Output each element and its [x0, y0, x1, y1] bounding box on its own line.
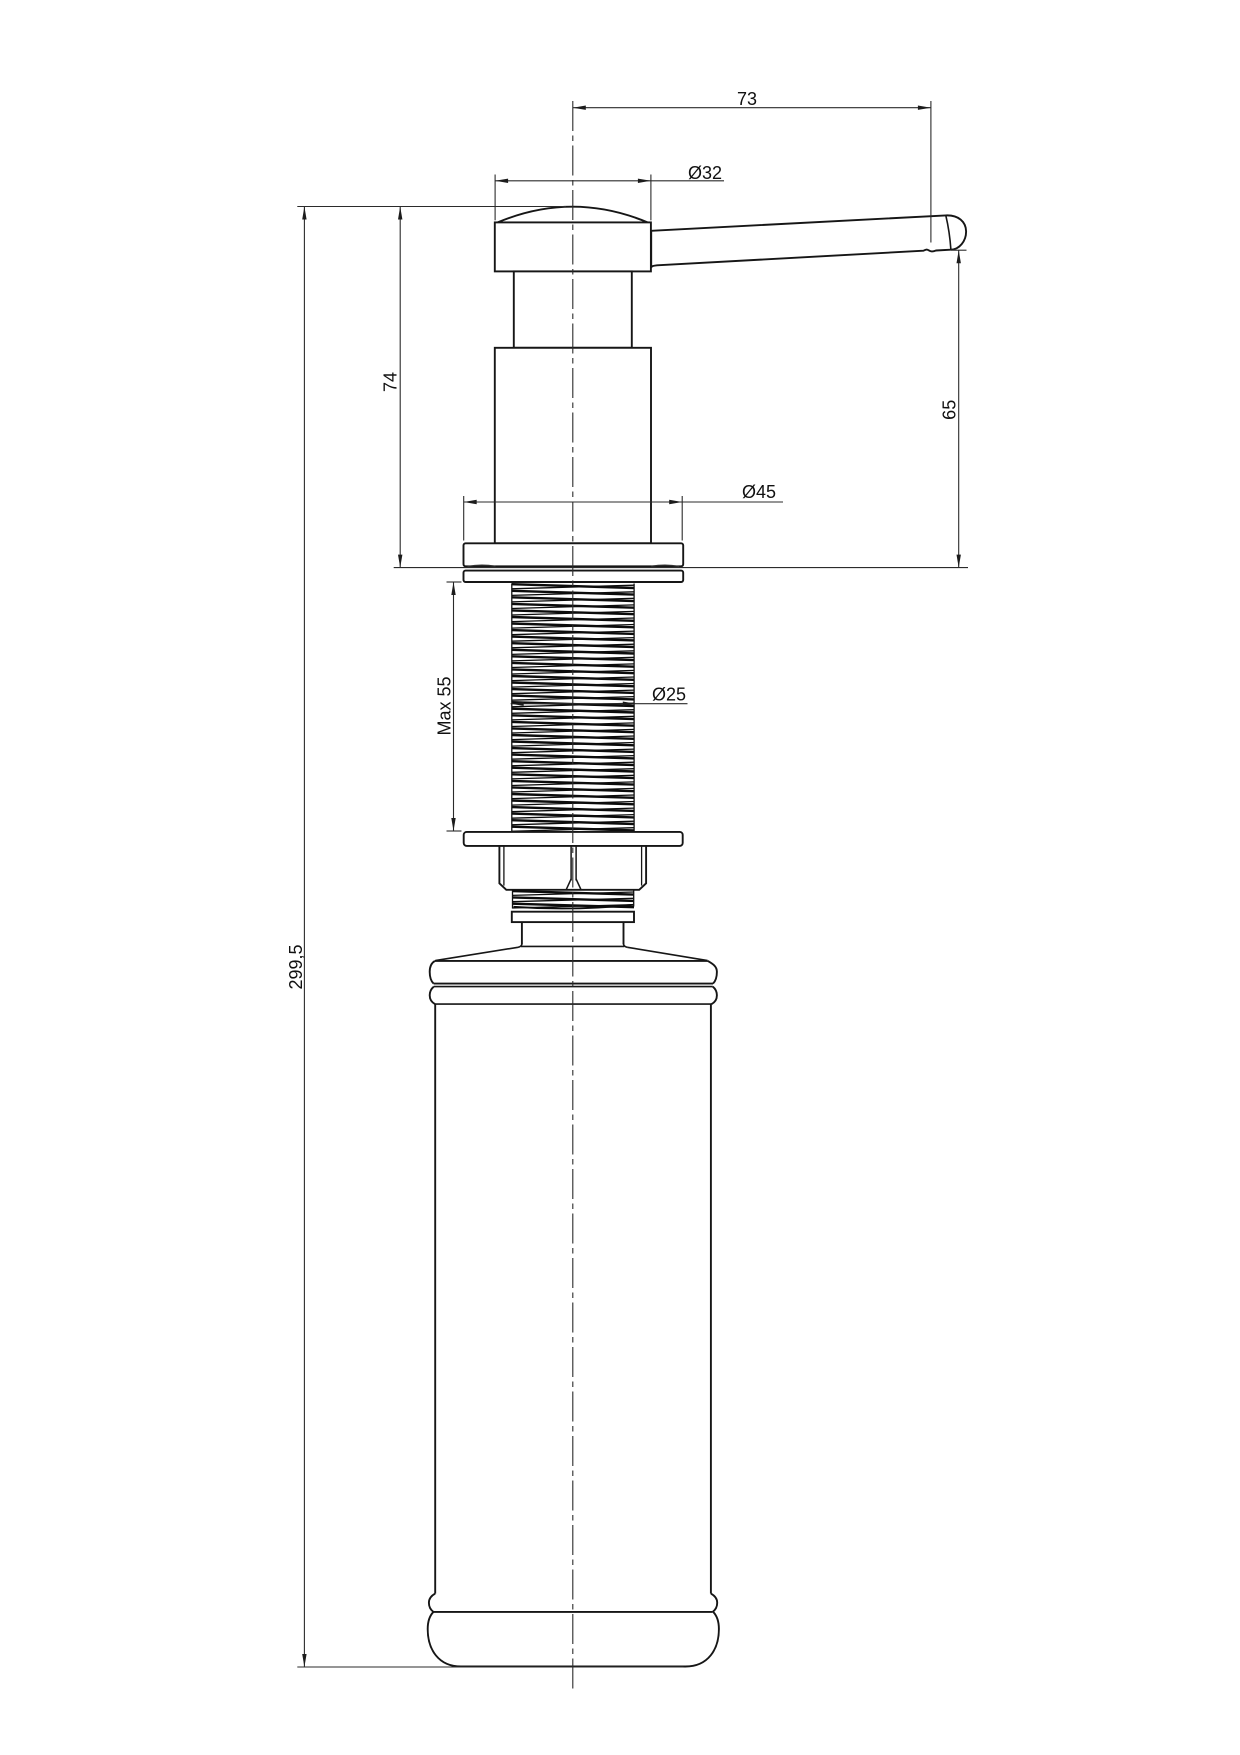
svg-text:65: 65 — [940, 400, 960, 420]
svg-text:Ø25: Ø25 — [652, 684, 686, 704]
svg-text:Ø32: Ø32 — [688, 163, 722, 183]
svg-text:Ø45: Ø45 — [742, 482, 776, 502]
svg-text:299,5: 299,5 — [286, 944, 306, 989]
svg-text:Max 55: Max 55 — [434, 676, 454, 735]
svg-text:73: 73 — [737, 89, 757, 109]
svg-text:74: 74 — [381, 372, 401, 392]
